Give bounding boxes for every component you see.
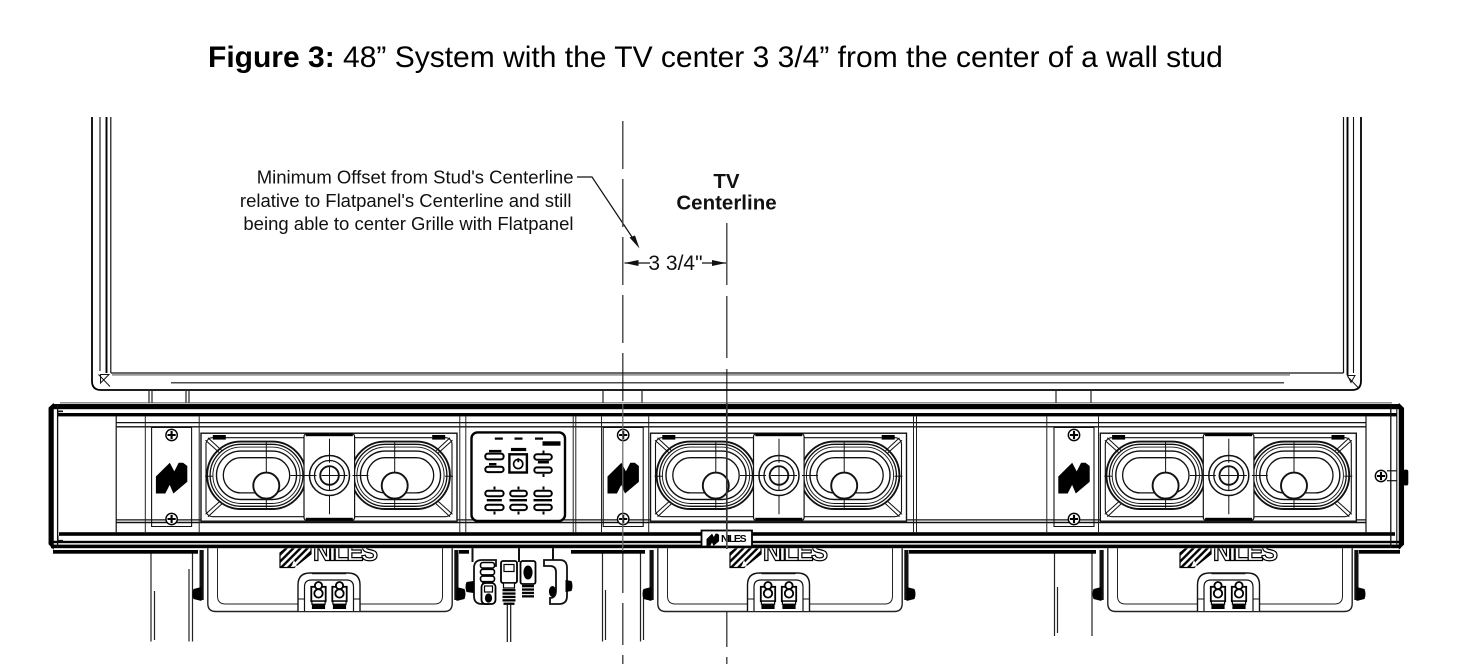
svg-text:3 3/4": 3 3/4": [648, 252, 702, 275]
svg-text:TV: TV: [713, 170, 740, 193]
svg-text:Minimum Offset from Stud's Cen: Minimum Offset from Stud's Centerline: [257, 167, 574, 188]
svg-text:being able to center Grille wi: being able to center Grille with Flatpan…: [243, 213, 573, 234]
svg-text:NILES: NILES: [721, 533, 747, 545]
svg-text:Figure 3: 48” System with the: Figure 3: 48” System with the TV center …: [208, 41, 1223, 74]
svg-text:relative to Flatpanel's Center: relative to Flatpanel's Centerline and s…: [240, 190, 572, 211]
svg-text:Centerline: Centerline: [676, 192, 776, 215]
